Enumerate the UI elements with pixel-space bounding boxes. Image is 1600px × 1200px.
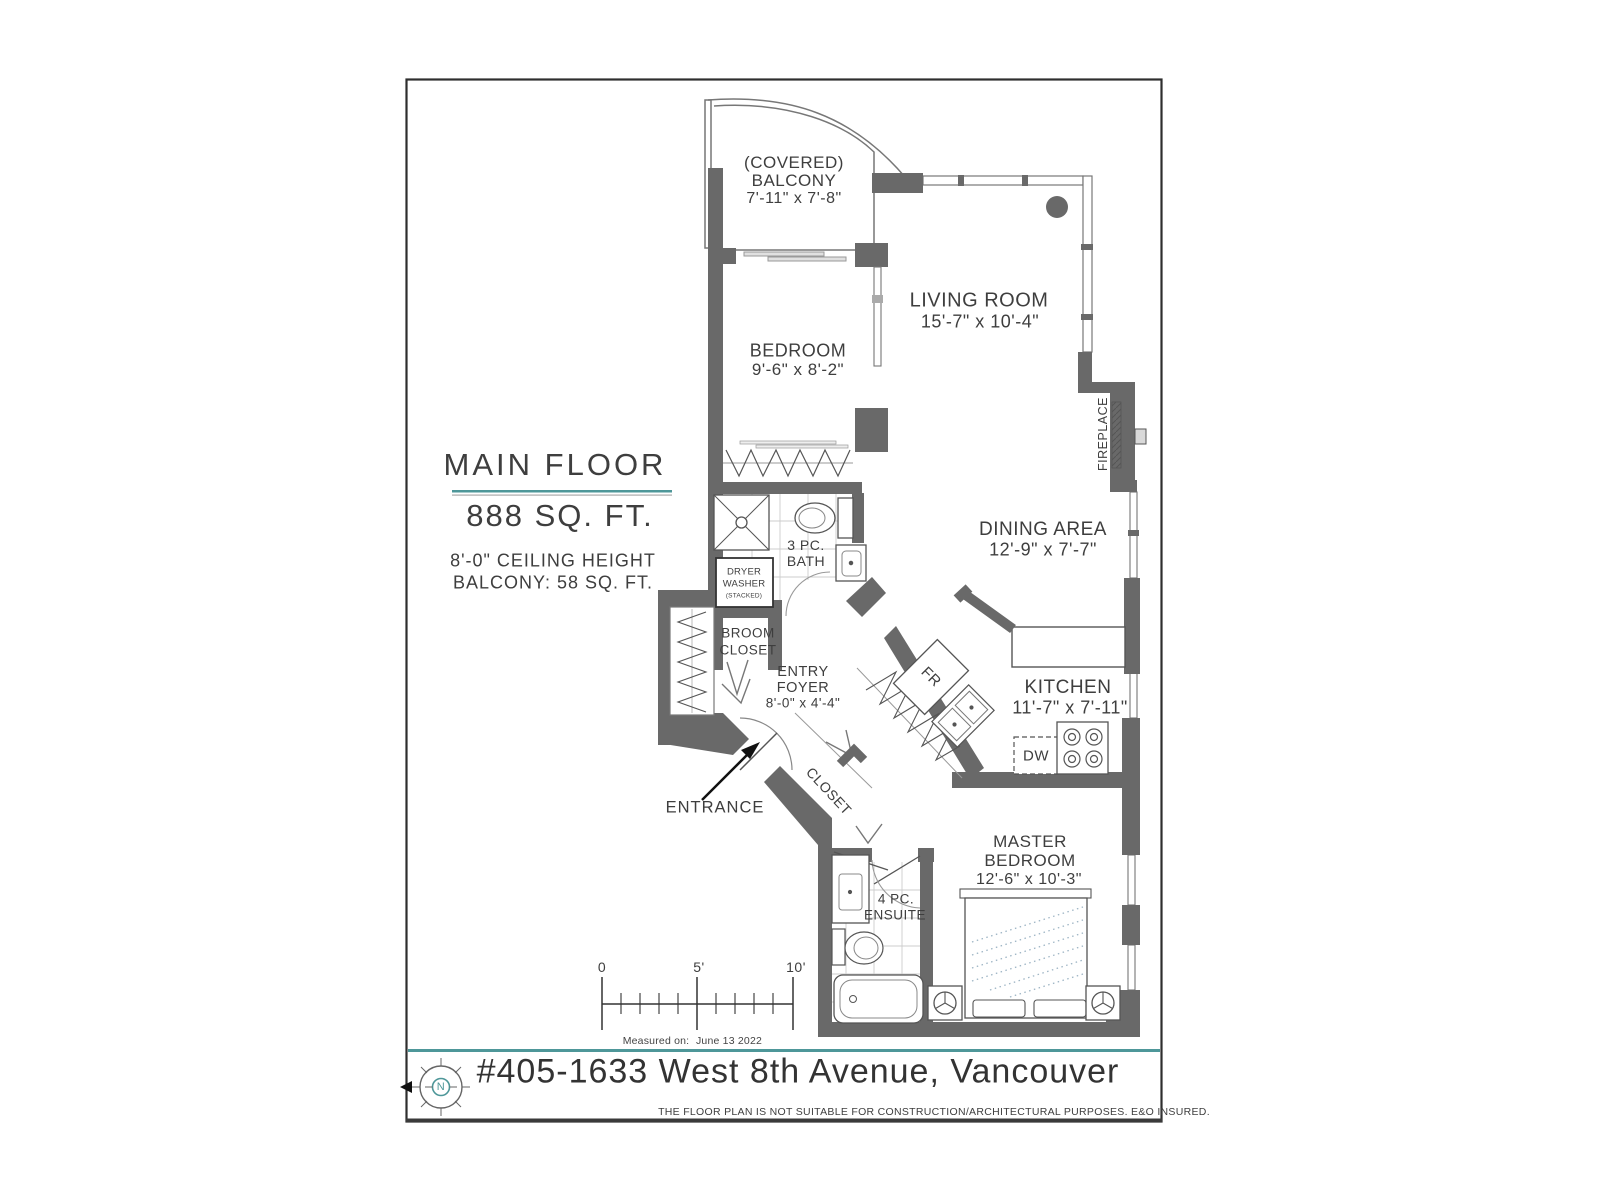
address: #405-1633 West 8th Avenue, Vancouver bbox=[477, 1053, 1120, 1092]
room-label-master-2: BEDROOM bbox=[984, 851, 1075, 871]
scale-ten: 10' bbox=[786, 959, 806, 975]
scale-zero: 0 bbox=[598, 959, 606, 975]
room-label-broom-1: BROOM bbox=[721, 626, 775, 641]
room-label-bath-1: 3 PC. bbox=[787, 537, 825, 553]
room-dims-living: 15'-7" x 10'-4" bbox=[921, 312, 1039, 333]
disclaimer: THE FLOOR PLAN IS NOT SUITABLE FOR CONST… bbox=[658, 1106, 1210, 1118]
room-dims-dining: 12'-9" x 7'-7" bbox=[989, 540, 1097, 561]
room-label-kitchen: KITCHEN bbox=[1025, 677, 1112, 699]
room-dims-kitchen: 11'-7" x 7'-11" bbox=[1012, 698, 1128, 719]
room-label-balcony-2: BALCONY bbox=[752, 171, 837, 191]
measured-on-label: Measured on: bbox=[623, 1035, 690, 1047]
room-label-balcony-1: (COVERED) bbox=[744, 153, 844, 173]
stacked-label: (STACKED) bbox=[726, 593, 762, 600]
compass-icon bbox=[400, 1058, 470, 1116]
plan-title: MAIN FLOOR bbox=[444, 447, 667, 483]
dryer-label: DRYER bbox=[727, 567, 761, 578]
scale-bar bbox=[602, 977, 793, 1030]
scale-five: 5' bbox=[693, 959, 704, 975]
plan-area: 888 SQ. FT. bbox=[466, 498, 653, 534]
measured-on-date: June 13 2022 bbox=[696, 1035, 762, 1047]
room-dims-bedroom: 9'-6" x 8'-2" bbox=[752, 360, 844, 380]
compass-n-label: N bbox=[437, 1081, 445, 1093]
title-underline bbox=[452, 490, 672, 496]
room-label-bath-2: BATH bbox=[787, 553, 825, 569]
washer-label: WASHER bbox=[723, 579, 766, 590]
room-label-entry-1: ENTRY bbox=[777, 664, 828, 680]
room-label-broom-2: CLOSET bbox=[719, 643, 776, 658]
column bbox=[1046, 196, 1068, 218]
entry-closets bbox=[670, 607, 750, 715]
dishwasher-label: DW bbox=[1023, 748, 1049, 765]
balcony-area: BALCONY: 58 SQ. FT. bbox=[453, 573, 653, 594]
room-dims-entry: 8'-0" x 4'-4" bbox=[766, 696, 841, 711]
floor-plan-page: MAIN FLOOR 888 SQ. FT. 8'-0" CEILING HEI… bbox=[0, 0, 1600, 1200]
room-label-dining: DINING AREA bbox=[979, 519, 1107, 541]
room-label-bedroom: BEDROOM bbox=[750, 341, 847, 362]
room-dims-balcony: 7'-11" x 7'-8" bbox=[746, 190, 841, 208]
fireplace-label: FIREPLACE bbox=[1096, 397, 1110, 471]
ceiling-height: 8'-0" CEILING HEIGHT bbox=[450, 551, 656, 572]
entrance-label: ENTRANCE bbox=[666, 799, 765, 818]
room-label-entry-2: FOYER bbox=[777, 680, 829, 696]
room-label-ensuite-2: ENSUITE bbox=[864, 908, 926, 923]
room-label-master-1: MASTER bbox=[993, 832, 1067, 852]
room-label-ensuite-1: 4 PC. bbox=[878, 892, 914, 907]
room-dims-master: 12'-6" x 10'-3" bbox=[976, 871, 1082, 889]
bed bbox=[960, 889, 1091, 1018]
room-label-living: LIVING ROOM bbox=[910, 290, 1049, 313]
